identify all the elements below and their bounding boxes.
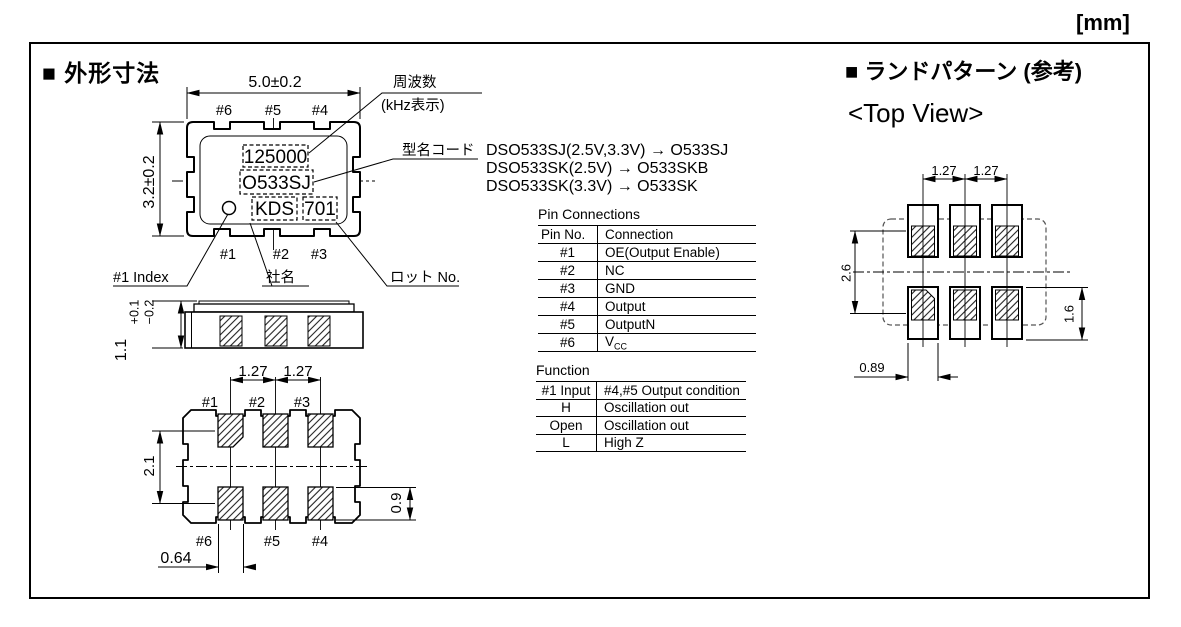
dimension-pad-height: 0.9 [388,493,405,514]
connection-cell: OE(Output Enable) [598,245,756,260]
pin-connections-title: Pin Connections [538,206,756,222]
pin-connections-table: Pin Connections Pin No. Connection #1 OE… [538,206,756,352]
side-view-pad [308,316,330,346]
package-top-view: 125000 O533SJ KDS 701 #6 #5 #4 #1 #2 #3 [172,103,375,263]
function-table: Function #1 Input #4,#5 Output condition… [536,362,746,452]
dimension-pitch1: 1.27 [238,363,267,380]
dimension-thickness-tol-plus: +0.1 [127,300,141,325]
connection-cell: NC [598,263,756,278]
dimension-land-height: 1.6 [1061,305,1076,323]
pad-3 [308,414,333,447]
table-header-row: Pin No. Connection [538,225,756,244]
header-pin-no: Pin No. [538,226,598,243]
side-view-pad [265,316,287,346]
company-marking: KDS [255,199,294,220]
pin-no-cell: #2 [538,262,598,279]
table-row: Open Oscillation out [536,417,746,435]
input-cell: H [536,400,597,417]
function-title: Function [536,362,746,378]
pin-no-cell: #5 [538,316,598,333]
package-side-view: +0.1 −0.2 1.1 [113,300,363,362]
table-row: H Oscillation out [536,400,746,418]
pin-no-cell: #1 [538,244,598,261]
dimension-row-span: 2.6 [838,264,853,282]
input-cell: Open [536,417,597,434]
technical-drawing-page: [mm] ■ 外形寸法 ■ ランドパターン (参考) <Top View> DS… [0,0,1181,627]
pin-label-4: #4 [312,103,328,119]
lot-label: ロット No. [390,270,460,286]
header-input: #1 Input [536,382,597,399]
pad-4 [308,487,333,520]
frequency-marking: 125000 [244,147,307,168]
table-row: L High Z [536,435,746,453]
lot-marking: 701 [304,199,336,220]
dimension-thickness: 1.1 [113,339,130,361]
output-cell: Oscillation out [597,418,746,433]
dimension-width: 5.0±0.2 [248,74,301,91]
dimension-height: 3.2±0.2 [141,155,158,208]
table-header-row: #1 Input #4,#5 Output condition [536,381,746,400]
side-view-pad [220,316,242,346]
model-code-label: 型名コード [402,142,475,159]
dimension-thickness-tol-minus: −0.2 [142,300,156,325]
model-code-marking: O533SJ [242,173,311,194]
connection-cell: OutputN [598,317,756,332]
frequency-label: 周波数 [393,74,437,91]
dimension-row-span: 2.1 [141,456,158,477]
company-label: 社名 [266,269,295,286]
pin-label-2: #2 [273,247,289,263]
pin-no-cell: #4 [538,298,598,315]
vcc-subscript: CC [614,342,627,352]
pad-6 [218,487,243,520]
table-row: #5 OutputN [538,316,756,334]
vcc-label: V [605,334,614,349]
frequency-unit-label: (kHz表示) [381,97,445,114]
table-row: #4 Output [538,298,756,316]
pin-label-6: #6 [196,534,212,550]
pad-2 [263,414,288,447]
pin-label-1: #1 [220,247,236,263]
pin-no-cell: #3 [538,280,598,297]
index-label: #1 Index [113,270,169,286]
pin-no-cell: #6 [538,334,598,352]
pin-label-6: #6 [216,103,232,119]
dimension-pad-width: 0.64 [160,550,191,567]
pin-label-1: #1 [202,395,218,411]
pin1-index-dot [223,202,236,215]
pin-label-5: #5 [264,534,280,550]
table-row: #3 GND [538,280,756,298]
output-cell: Oscillation out [597,400,746,415]
input-cell: L [536,435,597,452]
table-row: #6 VCC [538,334,756,352]
pad-5 [263,487,288,520]
pin-label-4: #4 [312,534,328,550]
output-cell: High Z [597,435,746,450]
dimension-pitch2: 1.27 [283,363,312,380]
header-output-condition: #4,#5 Output condition [597,383,746,398]
package-bottom-view: 1.27 1.27 2.1 0.9 0.64 #1 #2 #3 #6 #5 #4 [141,363,416,573]
connection-cell: VCC [598,334,756,352]
pin-label-3: #3 [311,247,327,263]
table-row: #1 OE(Output Enable) [538,244,756,262]
connection-cell: GND [598,281,756,296]
dimension-pitch1: 1.27 [931,163,956,178]
pin-label-3: #3 [294,395,310,411]
connection-cell: Output [598,299,756,314]
dimension-pitch2: 1.27 [973,163,998,178]
pin-label-2: #2 [249,395,265,411]
table-row: #2 NC [538,262,756,280]
dimension-land-width: 0.89 [859,360,884,375]
pin-label-5: #5 [265,103,281,119]
side-view-lid [194,304,354,312]
header-connection: Connection [598,227,756,242]
land-pattern-view: 1.27 1.27 2.6 1.6 0.89 [838,163,1088,381]
